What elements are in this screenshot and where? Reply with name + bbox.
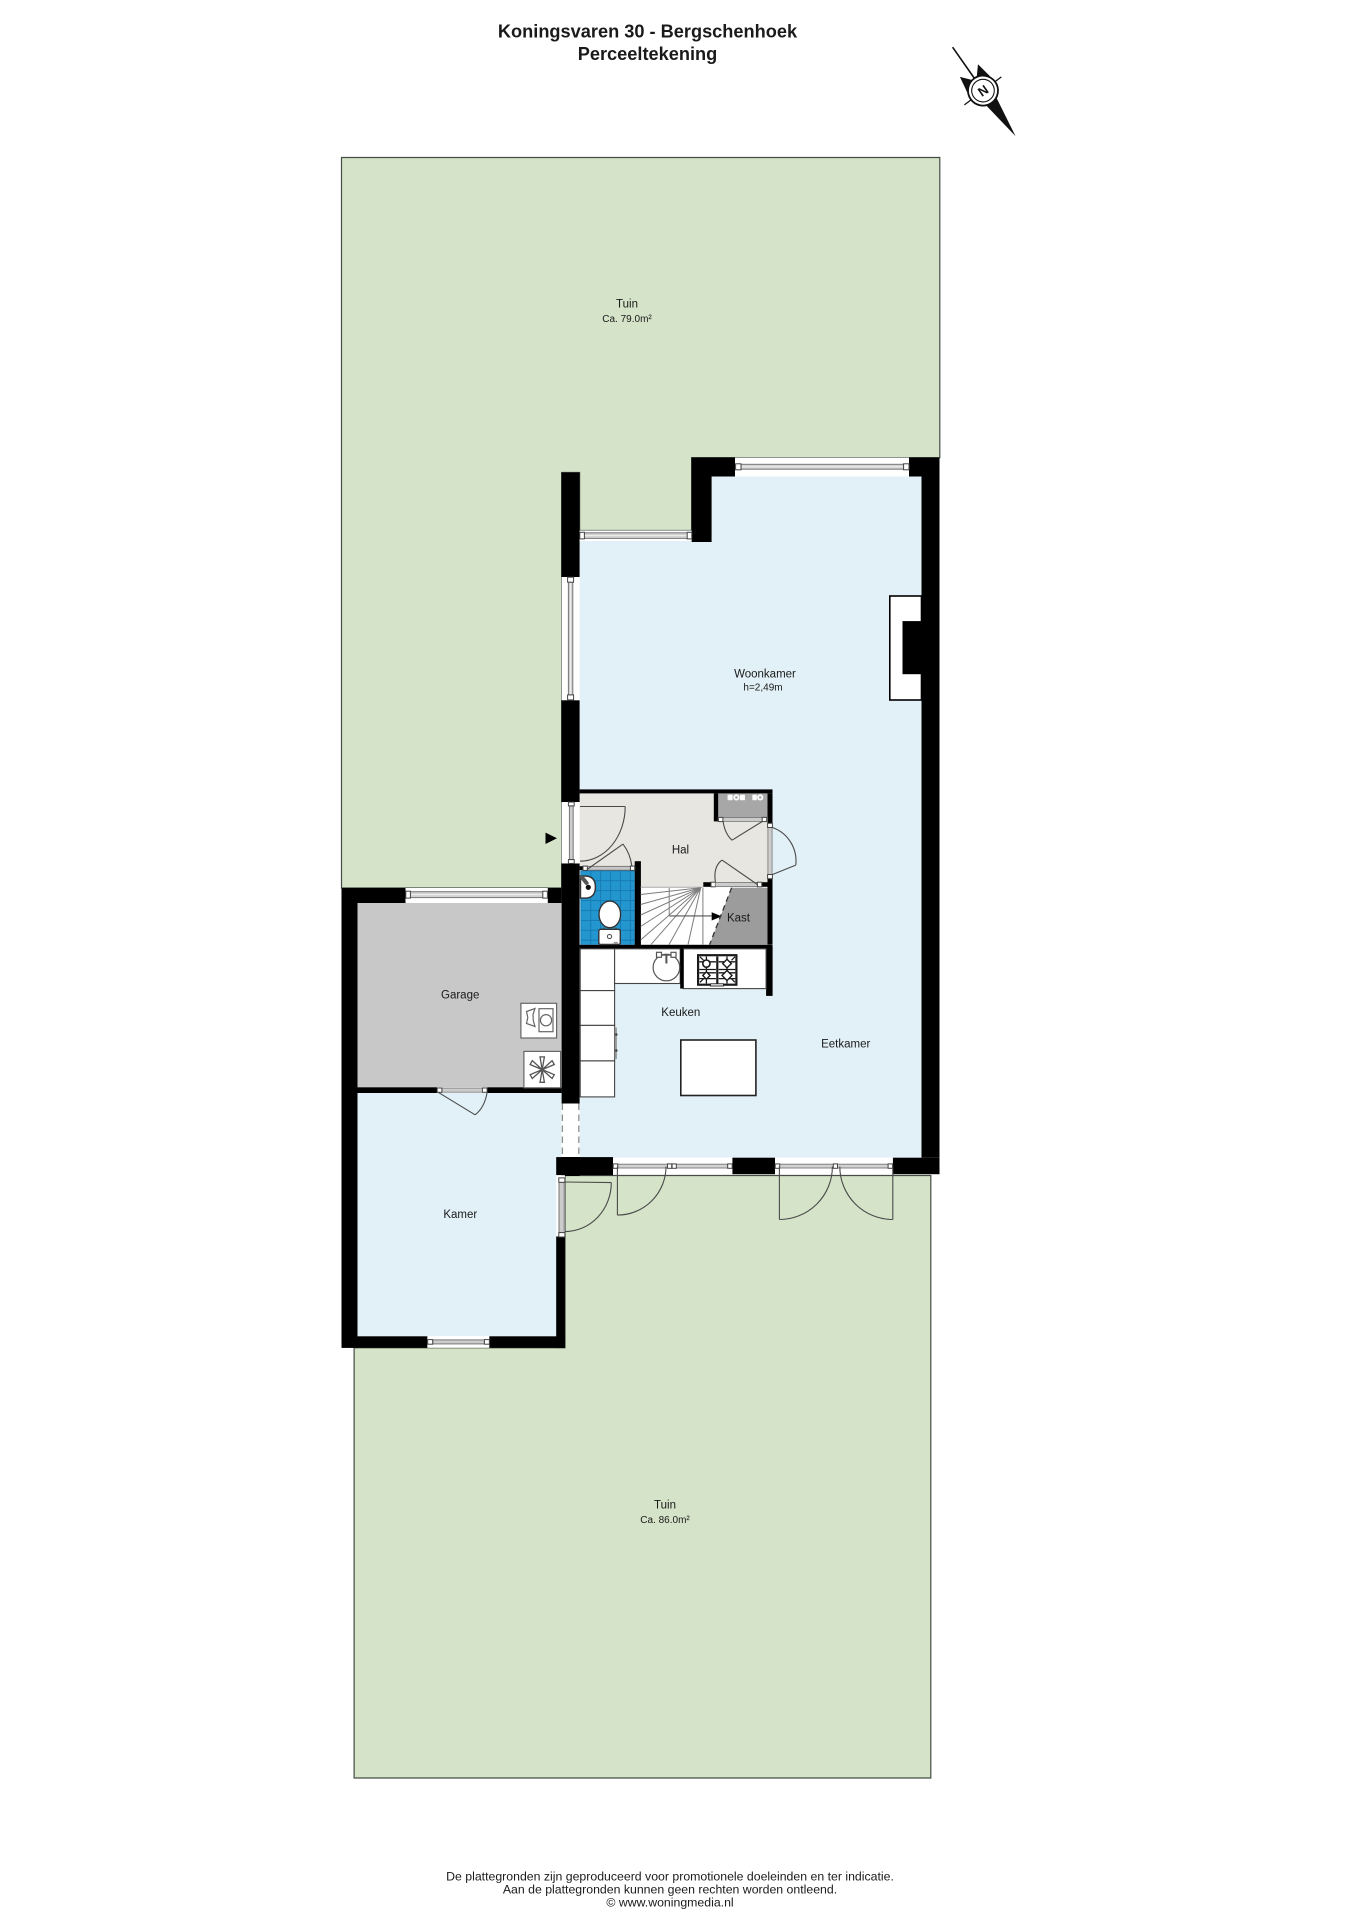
svg-text:De plattegronden zijn geproduc: De plattegronden zijn geproduceerd voor …: [446, 1869, 894, 1883]
svg-text:Ca. 79.0m²: Ca. 79.0m²: [602, 314, 652, 325]
svg-text:Tuin: Tuin: [616, 299, 638, 311]
svg-text:Kast: Kast: [727, 913, 751, 925]
svg-text:Hal: Hal: [672, 845, 689, 857]
svg-text:Aan de plattegronden kunnen ge: Aan de plattegronden kunnen geen rechten…: [503, 1882, 837, 1896]
svg-text:Koningsvaren 30 - Bergschenhoe: Koningsvaren 30 - Bergschenhoek: [498, 22, 798, 42]
svg-text:Garage: Garage: [441, 990, 479, 1002]
svg-text:Perceeltekening: Perceeltekening: [578, 44, 718, 64]
svg-text:© www.woningmedia.nl: © www.woningmedia.nl: [606, 1895, 733, 1909]
svg-text:h=2,49m: h=2,49m: [743, 683, 782, 694]
svg-text:Eetkamer: Eetkamer: [821, 1039, 870, 1051]
svg-text:Woonkamer: Woonkamer: [734, 669, 796, 681]
svg-text:Tuin: Tuin: [654, 1500, 676, 1512]
svg-text:Kamer: Kamer: [443, 1209, 477, 1221]
svg-text:Ca. 86.0m²: Ca. 86.0m²: [640, 1515, 690, 1526]
svg-text:Keuken: Keuken: [661, 1007, 700, 1019]
